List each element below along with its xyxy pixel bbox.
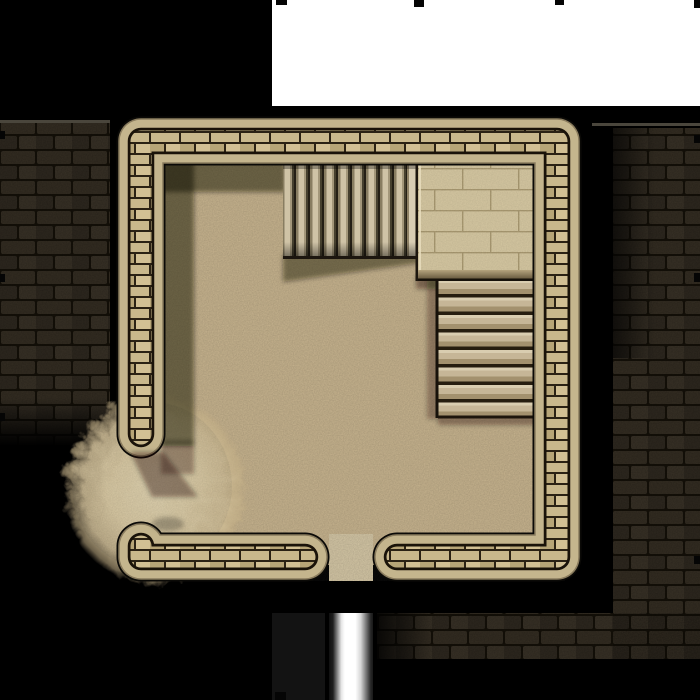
- stair-bottom-edge: [283, 256, 420, 259]
- platform-left-highlight: [419, 163, 421, 275]
- east-staircase: [436, 281, 537, 419]
- grid-mark: [694, 135, 700, 143]
- platform-grain: [418, 163, 538, 275]
- grid-mark: [0, 274, 5, 282]
- map-stage: [0, 0, 700, 700]
- grid-mark: [694, 556, 700, 564]
- stair-bottom-edge: [438, 416, 536, 419]
- stair-left-edge: [436, 281, 439, 418]
- grid-mark: [276, 0, 287, 5]
- grid-mark: [555, 0, 564, 5]
- shadow-wall-stub: [152, 517, 184, 531]
- platform-left-seam: [416, 163, 419, 281]
- platform-riser-edge: [418, 279, 538, 282]
- corridor-dark-rect: [272, 613, 325, 700]
- shadow-west-wall: [161, 161, 194, 446]
- dungeon-map: [0, 0, 700, 700]
- grid-mark: [0, 131, 5, 139]
- grid-mark: [694, 273, 700, 282]
- stone-shadow-fade: [613, 128, 655, 358]
- grid-mark: [275, 692, 286, 700]
- south-corridor: [272, 613, 373, 700]
- outer-wall-left: [0, 120, 110, 446]
- stone-grain: [0, 123, 110, 446]
- grid-mark: [414, 0, 424, 7]
- fog-of-war-mask: [272, 0, 700, 106]
- stone-shadow-fade: [377, 613, 432, 659]
- grid-mark: [694, 0, 700, 8]
- wall-brick-band: [141, 546, 305, 557]
- north-staircase: [283, 163, 420, 259]
- stone-top-highlight: [592, 123, 700, 126]
- stair-treads: [438, 281, 536, 418]
- grid-mark: [0, 413, 5, 421]
- raised-platform: [416, 163, 539, 281]
- stone-top-highlight: [0, 120, 110, 123]
- metal-pillar: [329, 613, 373, 700]
